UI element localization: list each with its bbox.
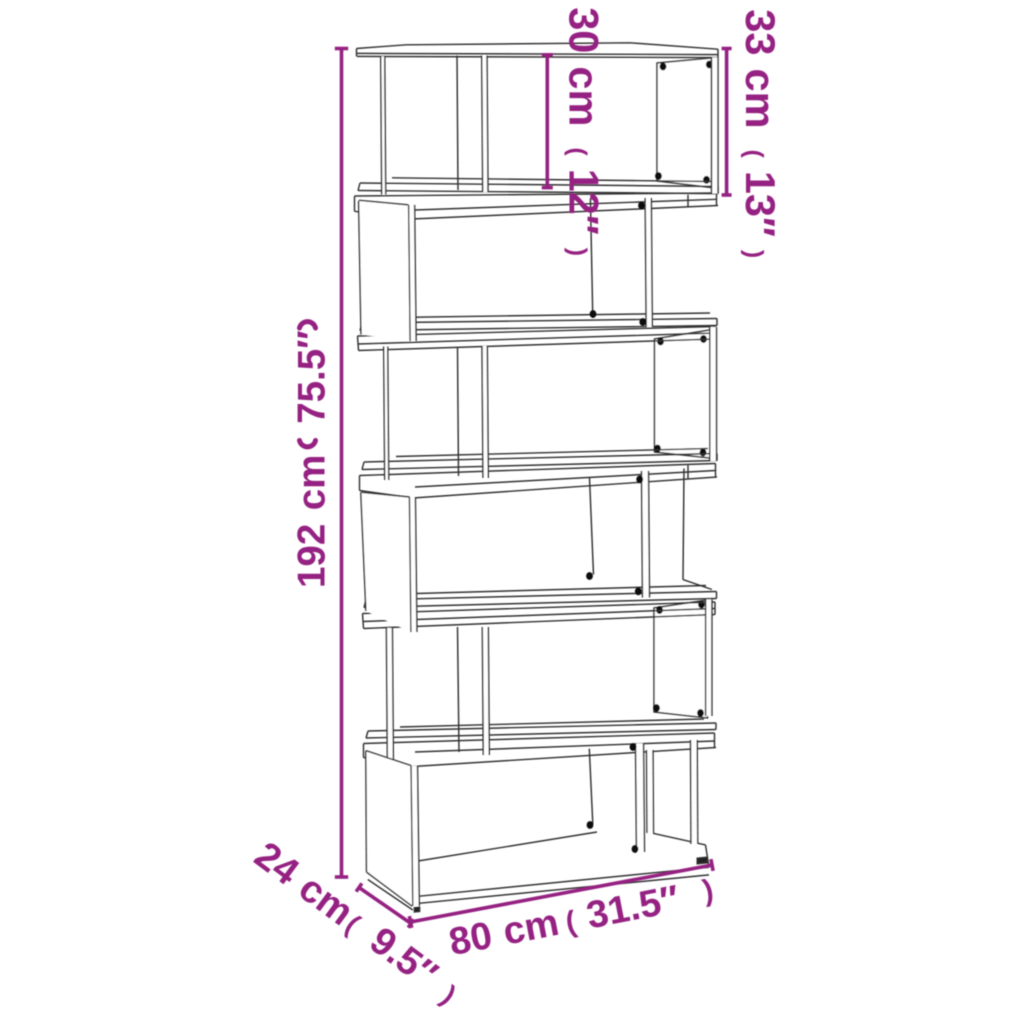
svg-text:30 cm ( 12″ ): 30 cm ( 12″ ) bbox=[561, 7, 608, 256]
svg-text:192 cm ( 75.5″ ): 192 cm ( 75.5″ ) bbox=[291, 313, 334, 588]
svg-text:33 cm ( 13″ ): 33 cm ( 13″ ) bbox=[737, 9, 784, 258]
